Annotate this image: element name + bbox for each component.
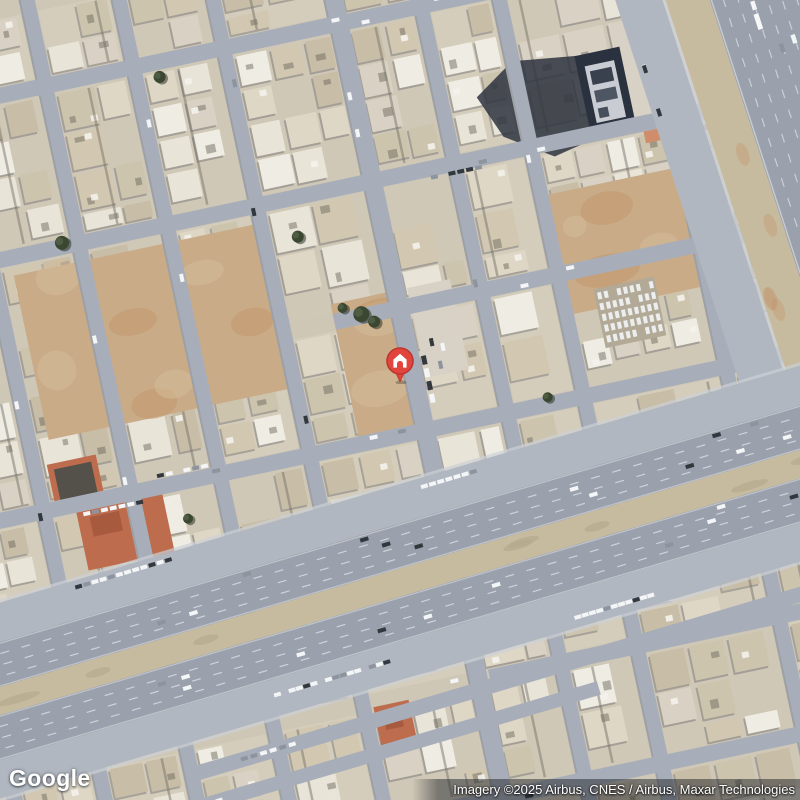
imagery-attribution: Imagery ©2025 Airbus, CNES / Airbus, Max… [453, 782, 795, 797]
satellite-imagery [0, 0, 800, 800]
marker-shadow [396, 380, 407, 384]
home-marker[interactable] [383, 344, 417, 384]
marker-circle [387, 348, 413, 374]
google-logo[interactable]: Google [9, 765, 91, 792]
satellite-map-canvas[interactable]: Google Imagery ©2025 Airbus, CNES / Airb… [0, 0, 800, 800]
